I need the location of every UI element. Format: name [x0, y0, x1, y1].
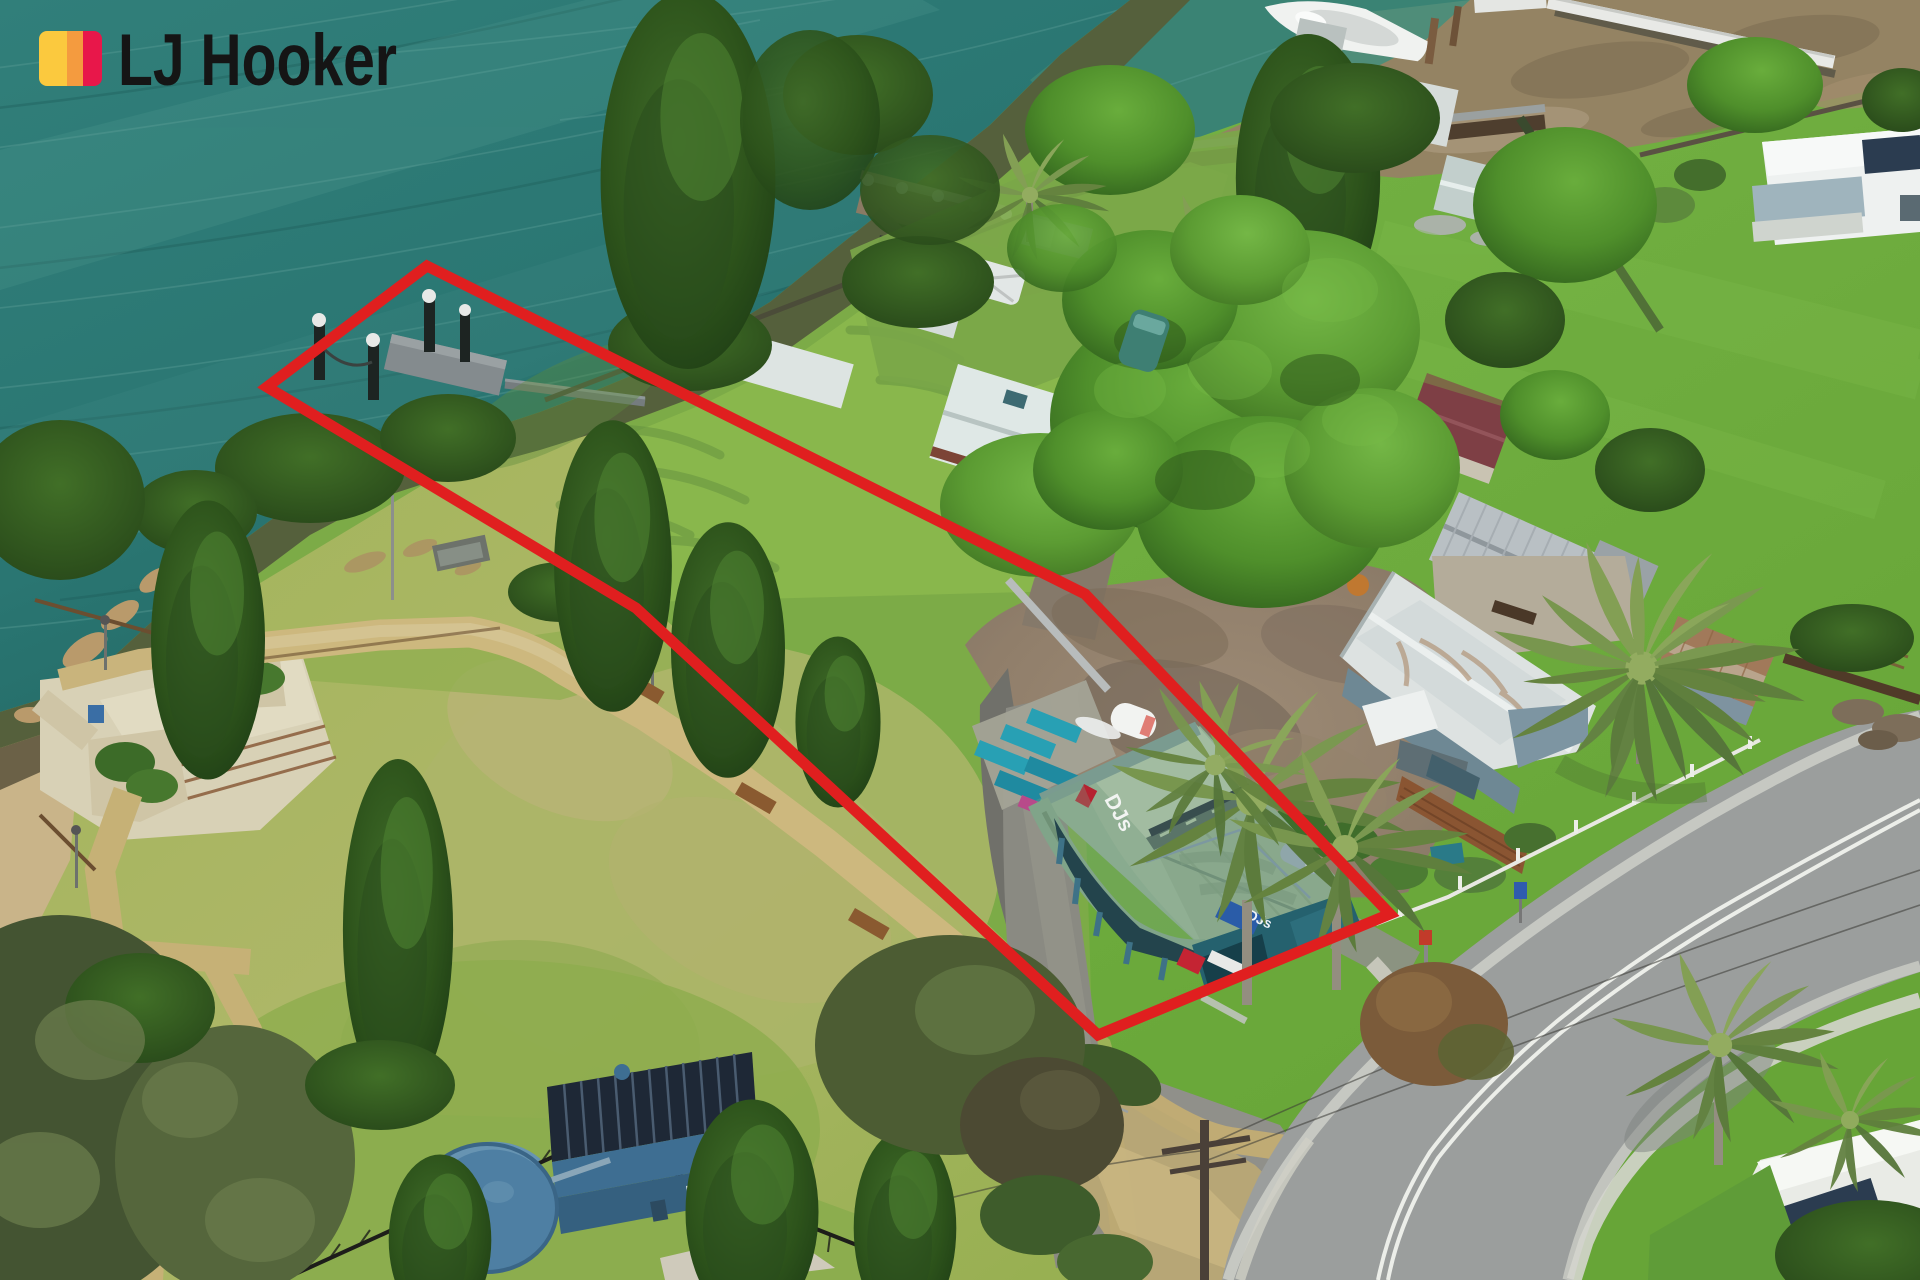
svg-text:LJ Hooker: LJ Hooker	[118, 20, 397, 101]
